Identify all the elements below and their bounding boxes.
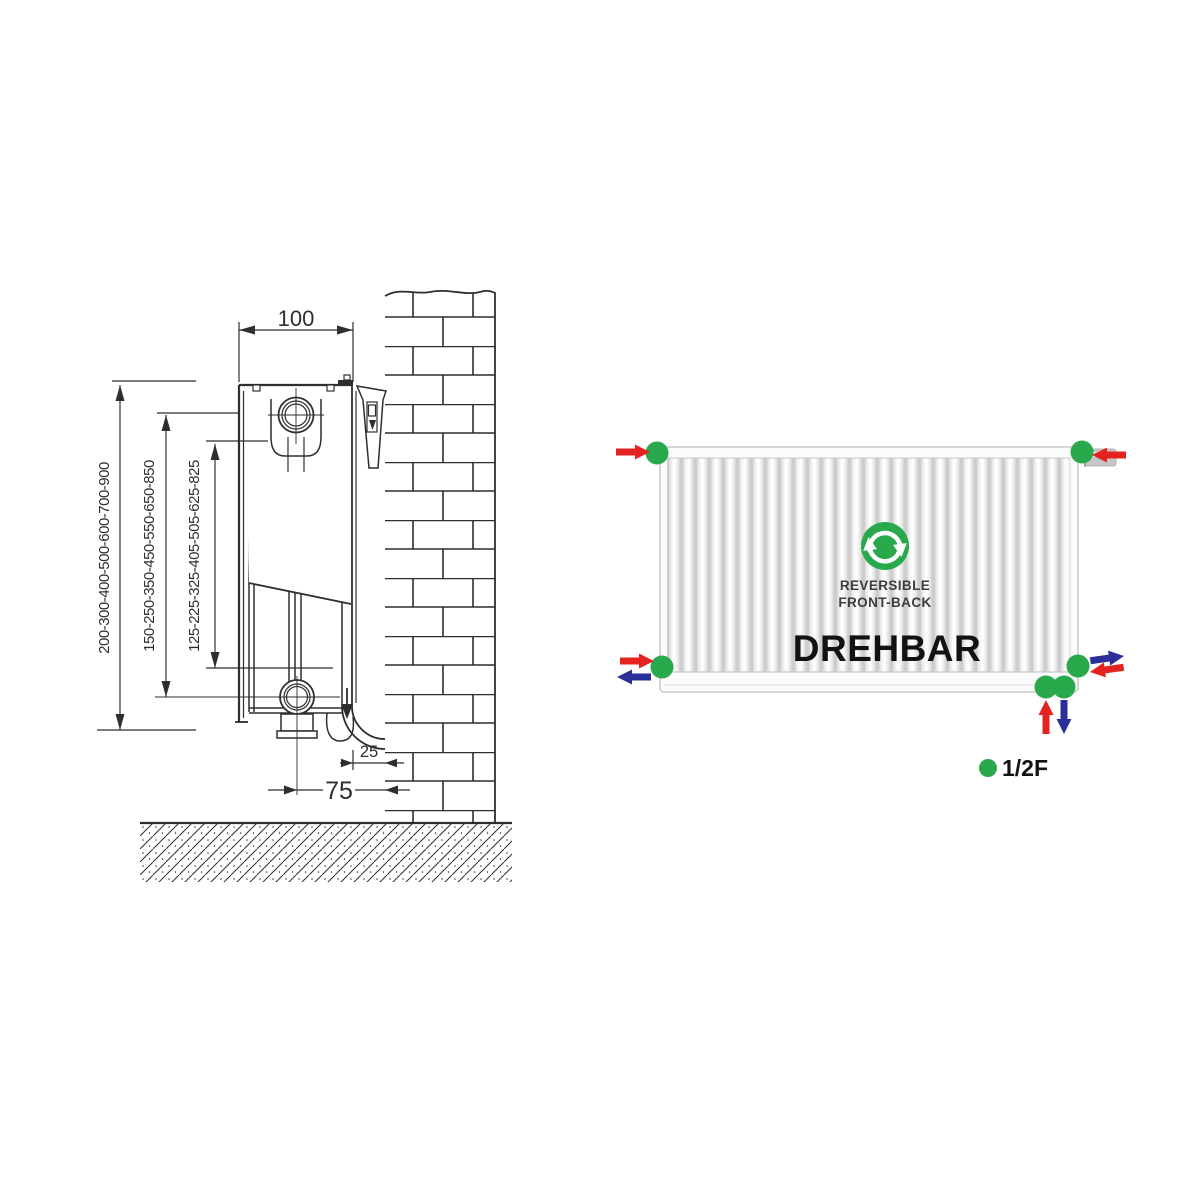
blue-arrow-bottom-left xyxy=(617,670,651,685)
height-range-middle-label: 150-250-350-450-550-650-850 xyxy=(141,460,158,652)
diagram-canvas: 100 200-300-400-500-600-700-900 150-250-… xyxy=(0,0,1200,1200)
legend-green-dot xyxy=(979,759,997,777)
connection-dot-bottom-2 xyxy=(1053,676,1076,699)
installation-diagram: 100 200-300-400-500-600-700-900 150-250-… xyxy=(96,291,512,882)
blue-arrow-bottom-down xyxy=(1057,700,1072,734)
legend: 1/2F xyxy=(979,755,1048,781)
red-arrow-bottom-up xyxy=(1039,700,1054,734)
reversible-badge-line2: FRONT-BACK xyxy=(838,595,931,610)
reversible-badge-line1: REVERSIBLE xyxy=(840,578,930,593)
mounting-notch xyxy=(327,385,334,391)
legend-label: 1/2F xyxy=(1002,755,1048,781)
depth-label: 100 xyxy=(278,306,315,331)
pipe-offset-label: 75 xyxy=(325,777,353,805)
connection-dot-top-left xyxy=(646,442,669,465)
red-arrow-bottom-left xyxy=(620,654,654,669)
drehbar-title: DREHBAR xyxy=(793,628,982,669)
brick-wall xyxy=(385,291,495,823)
dim-depth: 100 xyxy=(239,306,353,382)
mounting-notch xyxy=(253,385,260,391)
height-range-inner-label: 125-225-325-405-505-625-825 xyxy=(186,460,203,652)
height-range-outer-label: 200-300-400-500-600-700-900 xyxy=(96,462,113,654)
wall-gap-label: 25 xyxy=(360,743,378,761)
connection-dot-top-right xyxy=(1071,441,1094,464)
floor-hatch xyxy=(140,823,512,882)
radiator-spec-sheet: 100 200-300-400-500-600-700-900 150-250-… xyxy=(0,0,1200,1200)
reversible-cycle-icon xyxy=(861,522,909,570)
radiator-front-view: REVERSIBLE FRONT-BACK DREHBAR xyxy=(616,441,1126,782)
bottom-port xyxy=(277,676,317,795)
connection-dot-bottom-left xyxy=(651,656,674,679)
radiator-cross-section xyxy=(235,375,386,795)
connection-dot-bottom-right xyxy=(1067,655,1090,678)
red-arrow-top-left xyxy=(616,445,650,460)
